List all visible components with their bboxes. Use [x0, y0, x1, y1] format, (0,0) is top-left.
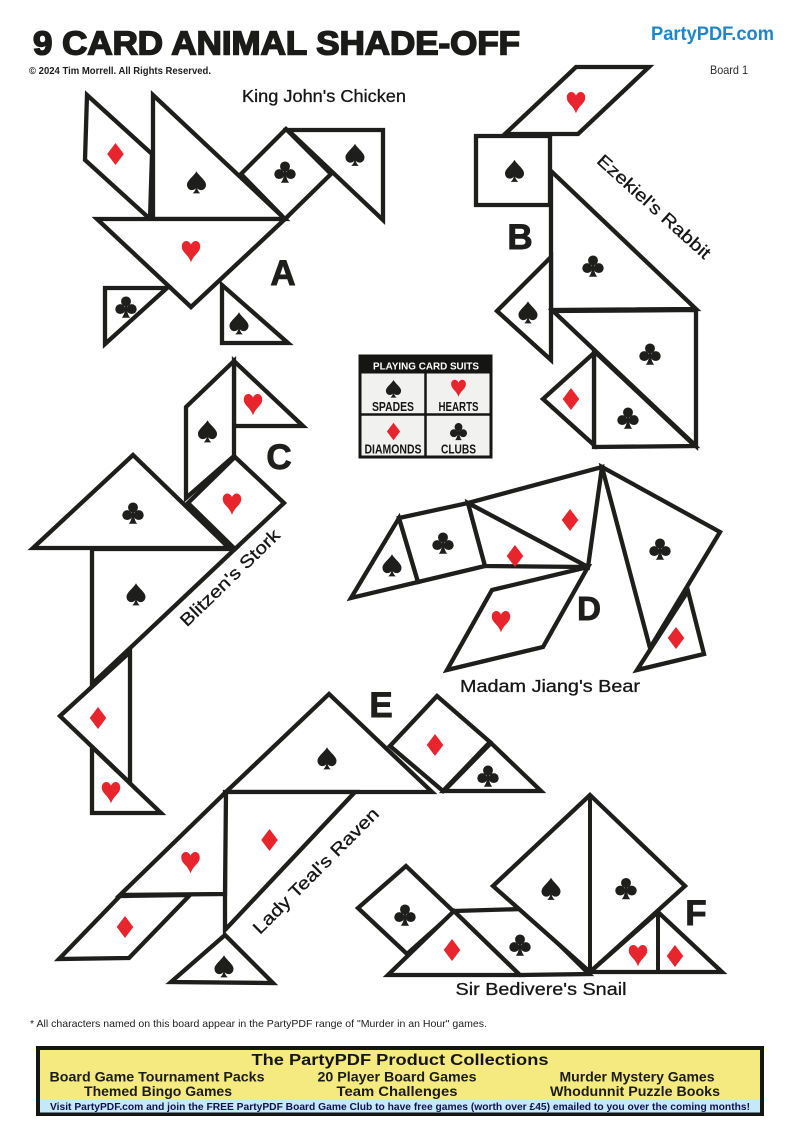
- svg-text:PLAYING CARD SUITS: PLAYING CARD SUITS: [373, 361, 479, 373]
- svg-text:CLUBS: CLUBS: [441, 442, 476, 457]
- svg-text:A: A: [270, 254, 295, 293]
- svg-text:C: C: [266, 438, 291, 477]
- svg-text:Team Challenges: Team Challenges: [337, 1084, 458, 1099]
- svg-text:E: E: [369, 686, 392, 725]
- svg-text:DIAMONDS: DIAMONDS: [365, 442, 422, 457]
- svg-text:9 CARD ANIMAL SHADE-OFF: 9 CARD ANIMAL SHADE-OFF: [33, 25, 520, 62]
- svg-text:© 2024 Tim Morrell. All Rights: © 2024 Tim Morrell. All Rights Reserved.: [29, 65, 211, 77]
- svg-text:Sir Bedivere's Snail: Sir Bedivere's Snail: [456, 979, 627, 999]
- svg-text:Themed Bingo Games: Themed Bingo Games: [84, 1084, 232, 1099]
- svg-text:B: B: [507, 218, 532, 257]
- svg-text:The PartyPDF Product Collectio: The PartyPDF Product Collections: [252, 1052, 549, 1069]
- svg-text:Visit PartyPDF.com and join th: Visit PartyPDF.com and join the FREE Par…: [50, 1101, 750, 1113]
- svg-text:SPADES: SPADES: [372, 399, 414, 414]
- svg-text:Board 1: Board 1: [710, 63, 748, 77]
- svg-text:D: D: [577, 590, 601, 627]
- svg-text:Madam Jiang's Bear: Madam Jiang's Bear: [460, 676, 640, 696]
- svg-text:20 Player Board Games: 20 Player Board Games: [318, 1070, 477, 1085]
- svg-text:* All characters named on this: * All characters named on this board app…: [30, 1018, 487, 1030]
- svg-text:F: F: [685, 894, 706, 933]
- svg-text:HEARTS: HEARTS: [439, 399, 479, 414]
- svg-text:PartyPDF.com: PartyPDF.com: [651, 24, 774, 45]
- svg-text:Board Game Tournament Packs: Board Game Tournament Packs: [50, 1070, 265, 1085]
- svg-text:Murder Mystery Games: Murder Mystery Games: [560, 1070, 715, 1085]
- svg-text:King John's Chicken: King John's Chicken: [242, 86, 406, 106]
- svg-text:Whodunnit Puzzle Books: Whodunnit Puzzle Books: [550, 1084, 720, 1099]
